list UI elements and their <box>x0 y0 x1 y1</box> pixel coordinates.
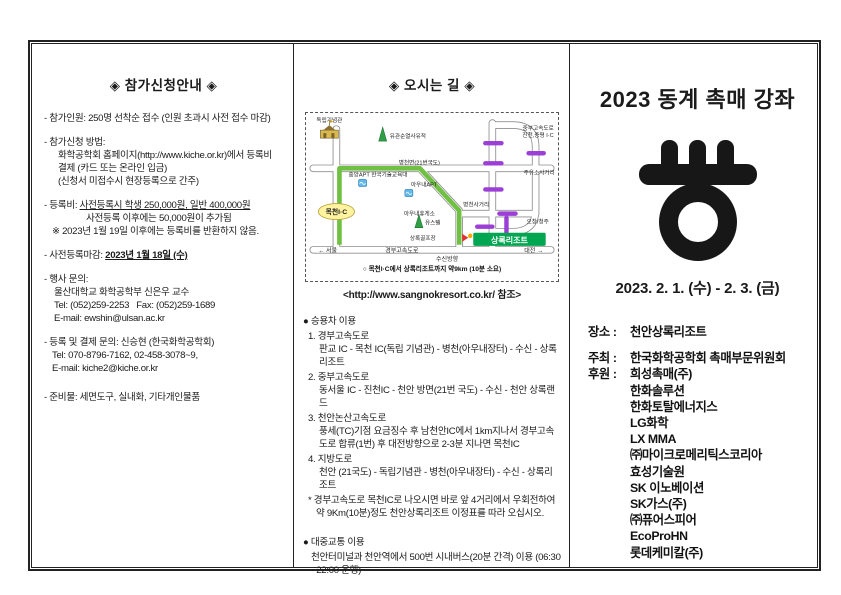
aunae-rest-label: 아우내휴게소 <box>404 210 435 218</box>
route-3-name: 3. 천안논산고속도로 <box>303 412 561 425</box>
yugwansun-icon <box>379 127 387 141</box>
reg-contact-head: - 등록 및 결제 문의: 신승현 (한국화학공학회) <box>44 336 283 349</box>
transit-header: ● 대중교통 이용 <box>303 536 561 549</box>
sponsor-item: 한화토탈에너지스 <box>630 399 762 415</box>
registration-title: ◈ 참가신청안내 ◈ <box>44 74 283 94</box>
sangnok-golf-label: 상록골프장 <box>410 234 436 242</box>
map-canvas: 상록리조트 목천I·C 독립기념관 중부고속도로 진천,증평 I·C 유관순열사… <box>306 113 558 276</box>
capacity-line: - 참가인원: 250명 선착순 접수 (인원 초과시 사전 접수 마감) <box>44 112 283 125</box>
apply-method-head: - 참가신청 방법: <box>44 136 283 149</box>
aunae-apt-label: 아우내APT <box>411 180 438 188</box>
sponsor-item: 희성촉매(주) <box>630 366 762 382</box>
event-contact-email: E-mail: ewshin@ulsan.ac.kr <box>44 312 283 325</box>
transit-block: ● 대중교통 이용 천안터미널과 천안역에서 500번 시내버스(20분 간격)… <box>303 536 561 577</box>
event-title: 2023 동계 촉매 강좌 <box>588 82 807 114</box>
apply-method-block: - 참가신청 방법: 화학공학회 홈페이지(http://www.kiche.o… <box>44 136 283 188</box>
youth-hostel-label: 유스텔 <box>425 219 441 227</box>
logo-bar <box>639 164 757 185</box>
flyer-frame: ◈ 참가신청안내 ◈ - 참가인원: 250명 선착순 접수 (인원 초과시 사… <box>28 40 821 571</box>
deadline-date: 2023년 1월 18일 (수) <box>105 250 187 261</box>
gas-junction-label: 주유소사거리 <box>524 168 555 176</box>
jungbu-expwy-label-2: 진천,증평 I·C <box>522 131 553 139</box>
sponsor-item: EcoProHN <box>630 528 762 544</box>
sponsor-item: ㈜퓨어스피어 <box>630 512 762 528</box>
place-label: 장소 : <box>588 324 630 340</box>
jungbu-expwy-label-1: 중부고속도로 <box>523 124 554 132</box>
seoul-label: ← 서울 <box>318 246 337 254</box>
car-header: ● 승용차 이용 <box>303 315 561 328</box>
event-panel: 2023 동계 촉매 강좌 2023. 2. 1. (수) - 2. 3. (금… <box>570 44 817 567</box>
byeongcheon-road-label: 병천면(21번국도) <box>399 158 440 166</box>
host-row: 주최 : 한국화학공학회 촉매부문위원회 <box>588 350 807 366</box>
mokcheon-ic-label: 목천I·C <box>326 207 348 216</box>
transit-desc: 천안터미널과 천안역에서 500번 시내버스(20분 간격) 이용 (06:30… <box>303 551 561 577</box>
place-row: 장소 : 천안상록리조트 <box>588 324 807 340</box>
map-distance-note: ○ 목천I·C에서 상록리조트까지 약9km (10분 소요) <box>363 264 502 273</box>
sponsor-item: LX MMA <box>630 431 762 447</box>
car-tip: * 경부고속도로 목천IC로 나오시면 바로 앞 4거리에서 우회전하여 약 9… <box>303 494 561 520</box>
sponsor-item: 한화솔루션 <box>630 383 762 399</box>
sponsor-row: 후원 : 희성촉매(주) 한화솔루션 한화토탈에너지스 LG화학 LX MMA … <box>588 366 807 560</box>
sangnok-resort-label: 상록리조트 <box>491 235 529 245</box>
route-3-desc: 풍세(TC)기점 요금징수 후 남천안IC에서 1km지나서 경부고속도로 합류… <box>303 425 561 451</box>
supplies-line: - 준비물: 세면도구, 실내화, 기타개인물품 <box>44 391 283 404</box>
fee-line: - 등록비: 사전등록시 학생 250,000원, 일반 400,000원 <box>44 199 283 212</box>
directions-title: ◈ 오시는 길 ◈ <box>303 74 561 94</box>
school-icon-2 <box>405 189 413 196</box>
event-date: 2023. 2. 1. (수) - 2. 3. (금) <box>588 277 807 298</box>
fee-block: - 등록비: 사전등록시 학생 250,000원, 일반 400,000원 사전… <box>44 199 283 238</box>
gyeongbu-expwy-label: 경부고속도로 <box>385 246 419 254</box>
flyer-columns: ◈ 참가신청안내 ◈ - 참가인원: 250명 선착순 접수 (인원 초과시 사… <box>32 44 817 567</box>
sponsor-list: 희성촉매(주) 한화솔루션 한화토탈에너지스 LG화학 LX MMA ㈜마이크로… <box>630 366 762 560</box>
sponsor-item: LG화학 <box>630 415 762 431</box>
reg-contact-block: - 등록 및 결제 문의: 신승현 (한국화학공학회) Tel: 070-879… <box>44 336 283 375</box>
event-contact-person: 울산대학교 화학공학부 신은우 교수 <box>44 286 283 299</box>
catalysis-society-logo-icon <box>633 140 763 261</box>
reg-contact-phone: Tel: 070-8796-7162, 02-458-3078~9, <box>44 349 283 362</box>
event-info: 장소 : 천안상록리조트 주최 : 한국화학공학회 촉매부문위원회 후원 : 희… <box>588 324 807 561</box>
event-contact-head: - 행사 문의: <box>44 273 283 286</box>
fee-label: - 등록비: <box>44 200 80 211</box>
place-value: 천안상록리조트 <box>630 324 706 340</box>
school-icon-1 <box>359 179 367 186</box>
independence-hall-label: 독립기념관 <box>316 116 342 124</box>
event-contact-block: - 행사 문의: 울산대학교 화학공학부 신은우 교수 Tel: (052)25… <box>44 273 283 325</box>
fee-surcharge: 사전등록 이후에는 50,000원이 추가됨 <box>44 212 283 225</box>
sponsor-item: SK 이노베이션 <box>630 480 762 496</box>
sponsor-item: 롯데케미칼(주) <box>630 545 762 561</box>
map-route <box>339 168 459 244</box>
route-2-desc: 동서울 IC - 진천IC - 천안 방면(21번 국도) - 수신 - 천안 … <box>303 384 561 410</box>
ochang-label: 오창/청주 <box>527 218 549 226</box>
apply-method-line3: (신청서 미접수시 현장등록으로 간주) <box>44 175 283 188</box>
deadline-line: - 사전등록마감: 2023년 1월 18일 (수) <box>44 249 283 262</box>
sponsor-item: ㈜마이크로메리틱스코리아 <box>630 447 762 463</box>
route-1-desc: 판교 IC - 목천 IC(독립 기념관) - 병천(아우내장터) - 수신 -… <box>303 343 561 369</box>
sponsor-item: SK가스(주) <box>630 496 762 512</box>
resort-flag-icons <box>462 234 472 242</box>
yugwansun-label: 유관순열사유적 <box>390 132 426 140</box>
sponsor-item: 효성기술원 <box>630 464 762 480</box>
reg-contact-email: E-mail: kiche2@kiche.or.kr <box>44 362 283 375</box>
route-4-name: 4. 지방도로 <box>303 453 561 466</box>
byeongcheon-junction-label: 병천사거리 <box>463 201 489 209</box>
route-4-desc: 천안 (21국도) - 독립기념관 - 병천(아우내장터) - 수신 - 상록리… <box>303 466 561 492</box>
map-caption: <http://www.sangnokresort.co.kr/ 참조> <box>303 286 561 301</box>
location-map: 상록리조트 목천I·C 독립기념관 중부고속도로 진천,증평 I·C 유관순열사… <box>305 112 559 282</box>
fee-refund-note: ※ 2023년 1월 19일 이후에는 등록비를 반환하지 않음. <box>44 225 283 238</box>
sponsor-label: 후원 : <box>588 366 630 560</box>
susin-label: 수신방향 <box>436 255 459 263</box>
route-2-name: 2. 중부고속도로 <box>303 371 561 384</box>
registration-panel: ◈ 참가신청안내 ◈ - 참가인원: 250명 선착순 접수 (인원 초과시 사… <box>32 44 294 567</box>
daejeon-label: 대전 → <box>524 246 543 254</box>
host-label: 주최 : <box>588 350 630 366</box>
apply-method-line2: 결제 (카드 또는 온라인 입금) <box>44 162 283 175</box>
route-1-name: 1. 경부고속도로 <box>303 330 561 343</box>
logo-ring <box>659 183 737 261</box>
jungang-apt-label: 중앙APT 한국기술교육대 <box>348 170 407 178</box>
host-value: 한국화학공학회 촉매부문위원회 <box>630 350 786 366</box>
apply-method-line1: 화학공학회 홈페이지(http://www.kiche.or.kr)에서 등록비 <box>44 149 283 162</box>
fee-amounts: 사전등록시 학생 250,000원, 일반 400,000원 <box>80 200 251 211</box>
directions-panel: ◈ 오시는 길 ◈ <box>294 44 570 567</box>
event-contact-phone: Tel: (052)259-2253 Fax: (052)259-1689 <box>44 299 283 312</box>
deadline-label: - 사전등록마감: <box>44 250 105 261</box>
